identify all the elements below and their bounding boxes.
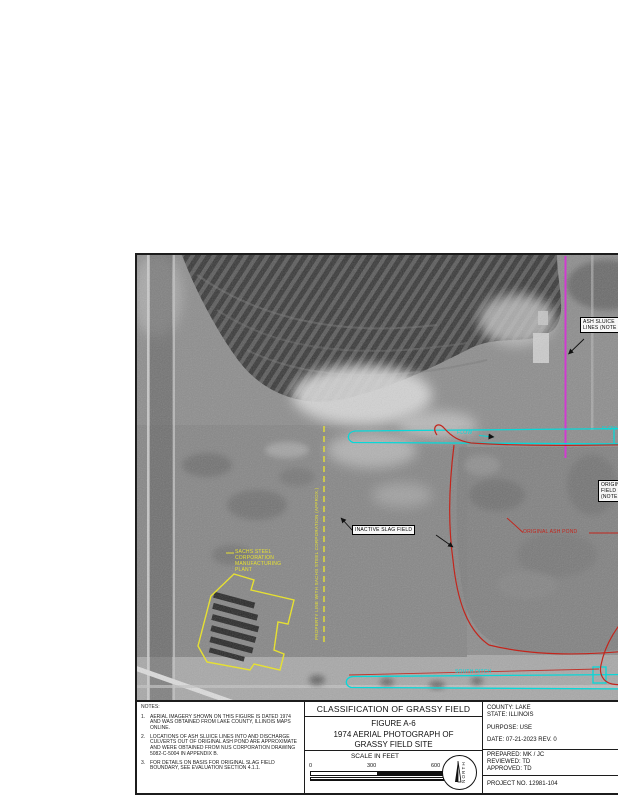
admin-panel: COUNTY: LAKE STATE: ILLINOIS PURPOSE: US…: [483, 702, 618, 793]
county: COUNTY: LAKE: [487, 705, 618, 712]
scale-tick-300: 300: [367, 763, 376, 769]
scale-bar: [310, 771, 444, 776]
prepared-by: PREPARED: MK / JC: [487, 752, 618, 759]
north-label: NORTH: [461, 761, 466, 783]
scale-tick-600: 600: [431, 763, 440, 769]
drawing-sheet: ASH SLUICE LINES (NOTE 2) INACTIVE SLAG …: [135, 253, 618, 795]
scale-tick-0: 0: [309, 763, 312, 769]
admin-top: COUNTY: LAKE STATE: ILLINOIS PURPOSE: US…: [483, 702, 618, 750]
report-page: { "sheet": { "notes": { "heading": "NOTE…: [0, 0, 618, 800]
ash-sluice-label: ASH SLUICE LINES (NOTE 2): [580, 317, 618, 333]
title-block: NOTES: 1. AERIAL IMAGERY SHOWN ON THIS F…: [137, 700, 618, 793]
figure-title-panel: CLASSIFICATION OF GRASSY FIELD FIGURE A-…: [305, 702, 483, 793]
note-item: 2. LOCATIONS OF ASH SLUICE LINES INTO AN…: [141, 735, 300, 757]
reviewed-by: REVIEWED: TD: [487, 759, 618, 766]
aerial-photo-art: [137, 255, 618, 700]
project-number: PROJECT NO. 12981-104: [487, 781, 618, 788]
plant-label: SACHS STEEL CORPORATION MANUFACTURING PL…: [235, 549, 281, 573]
flow-label: FLOW: [457, 430, 472, 436]
figure-title-line1: 1974 AERIAL PHOTOGRAPH OF: [305, 730, 482, 741]
scale-bar-lower: [310, 777, 444, 781]
scale-label: SCALE IN FEET: [305, 753, 445, 760]
north-arrow: NORTH: [442, 755, 477, 790]
purpose: PURPOSE: USE: [487, 725, 618, 732]
approved-by: APPROVED: TD: [487, 766, 618, 773]
film-grain: [137, 255, 618, 700]
notes-panel: NOTES: 1. AERIAL IMAGERY SHOWN ON THIS F…: [137, 702, 305, 793]
note-item: 3. FOR DETAILS ON BASIS FOR ORIGINAL SLA…: [141, 761, 300, 772]
figure-title-line2: GRASSY FIELD SITE: [305, 740, 482, 751]
aerial-map: ASH SLUICE LINES (NOTE 2) INACTIVE SLAG …: [137, 255, 618, 700]
scale-panel: SCALE IN FEET 0 300 600 NORTH: [305, 751, 482, 793]
flow-label-right: FLOW: [602, 426, 617, 432]
original-slag-field-label: ORIGINAL SLAG FIELD (NOTE 3): [598, 480, 618, 502]
property-line-label: PROPERTY LINE WITH SACHS STEEL CORPORATI…: [314, 428, 320, 640]
state: STATE: ILLINOIS: [487, 712, 618, 719]
north-arrow-icon: [443, 756, 476, 789]
date: DATE: 07-21-2023 REV. 0: [487, 737, 618, 744]
admin-mid: PREPARED: MK / JC REVIEWED: TD APPROVED:…: [483, 750, 618, 776]
figure-title: FIGURE A-6 1974 AERIAL PHOTOGRAPH OF GRA…: [305, 717, 482, 751]
original-ash-pond-label: ORIGINAL ASH POND: [523, 529, 577, 535]
figure-number: FIGURE A-6: [305, 719, 482, 730]
inactive-slag-field-label: INACTIVE SLAG FIELD: [352, 525, 415, 535]
admin-bottom: PROJECT NO. 12981-104: [483, 776, 618, 788]
south-ditch-label: SOUTH DITCH: [455, 669, 491, 675]
classification-title: CLASSIFICATION OF GRASSY FIELD: [305, 702, 482, 717]
note-item: 1. AERIAL IMAGERY SHOWN ON THIS FIGURE I…: [141, 715, 300, 732]
notes-heading: NOTES:: [141, 705, 300, 711]
